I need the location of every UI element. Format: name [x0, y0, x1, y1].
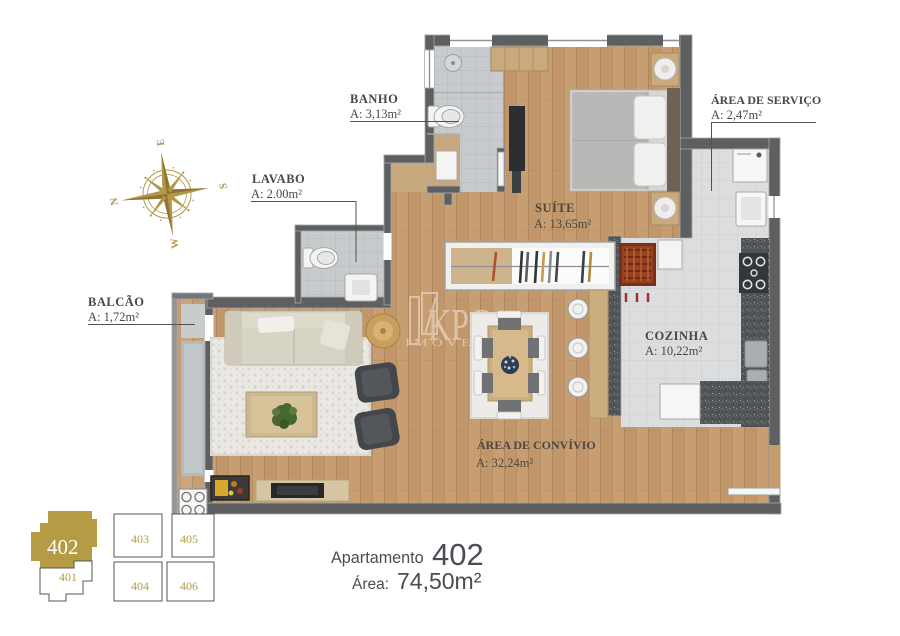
- svg-text:405: 405: [180, 532, 198, 546]
- svg-text:N: N: [109, 196, 121, 205]
- svg-text:BANHO: BANHO: [350, 92, 398, 106]
- svg-text:A: 13,65m²: A: 13,65m²: [534, 217, 591, 231]
- svg-text:402: 402: [47, 535, 79, 559]
- svg-text:S: S: [218, 182, 230, 189]
- svg-text:A: 3,13m²: A: 3,13m²: [350, 107, 401, 121]
- svg-text:SUÍTE: SUÍTE: [535, 201, 575, 215]
- svg-text:402: 402: [432, 537, 484, 572]
- svg-text:406: 406: [180, 579, 198, 593]
- svg-text:Apartamento: Apartamento: [331, 549, 424, 567]
- svg-text:404: 404: [131, 579, 149, 593]
- svg-text:401: 401: [59, 570, 77, 584]
- svg-text:Área:: Área:: [352, 576, 389, 593]
- svg-text:ÁREA DE SERVIÇO: ÁREA DE SERVIÇO: [711, 93, 821, 107]
- svg-text:74,50m²: 74,50m²: [397, 568, 482, 594]
- svg-text:COZINHA: COZINHA: [645, 329, 708, 343]
- svg-text:ÁREA DE CONVÍVIO: ÁREA DE CONVÍVIO: [477, 438, 596, 452]
- svg-text:A: 1,72m²: A: 1,72m²: [88, 310, 139, 324]
- svg-text:A: 2.00m²: A: 2.00m²: [251, 187, 302, 201]
- svg-text:BALCÃO: BALCÃO: [88, 295, 144, 309]
- svg-text:A: 2,47m²: A: 2,47m²: [711, 108, 762, 122]
- svg-text:A: 10,22m²: A: 10,22m²: [645, 344, 702, 358]
- svg-text:LAVABO: LAVABO: [252, 172, 305, 186]
- svg-text:A: 32,24m²: A: 32,24m²: [476, 456, 533, 470]
- svg-text:E: E: [155, 138, 167, 146]
- svg-text:403: 403: [131, 532, 149, 546]
- svg-text:W: W: [169, 237, 181, 249]
